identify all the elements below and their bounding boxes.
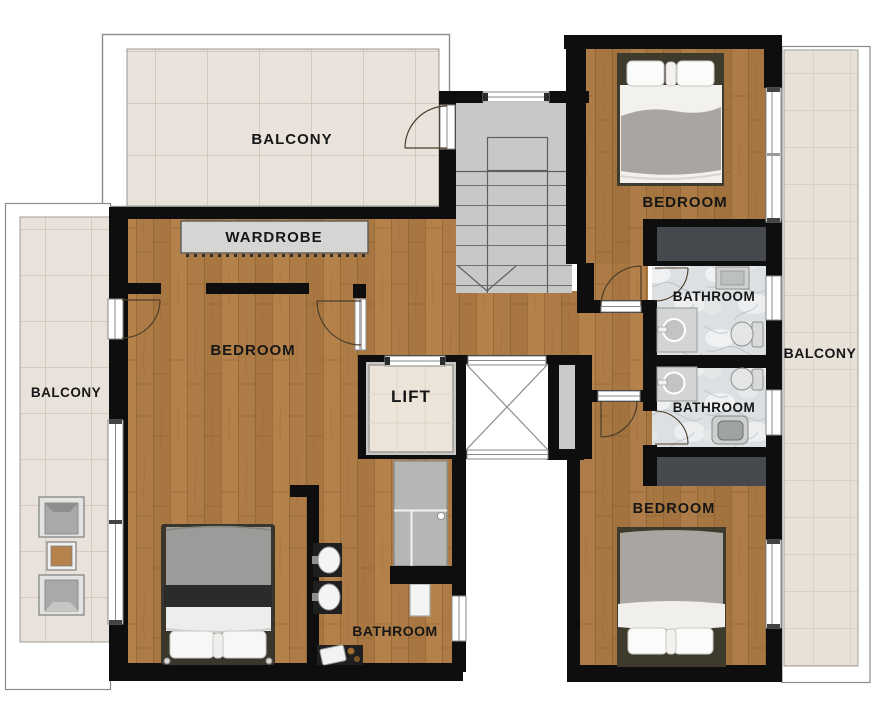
svg-text:BATHROOM: BATHROOM — [352, 623, 437, 639]
svg-text:BATHROOM: BATHROOM — [673, 400, 756, 415]
svg-text:BEDROOM: BEDROOM — [642, 194, 727, 211]
svg-text:BEDROOM: BEDROOM — [210, 342, 295, 359]
svg-text:BALCONY: BALCONY — [31, 385, 101, 400]
svg-text:BEDROOM: BEDROOM — [633, 501, 716, 517]
svg-text:BALCONY: BALCONY — [784, 345, 857, 361]
svg-text:WARDROBE: WARDROBE — [225, 229, 322, 246]
svg-text:BALCONY: BALCONY — [251, 131, 332, 148]
svg-text:BATHROOM: BATHROOM — [673, 289, 756, 304]
svg-text:LIFT: LIFT — [391, 387, 431, 406]
